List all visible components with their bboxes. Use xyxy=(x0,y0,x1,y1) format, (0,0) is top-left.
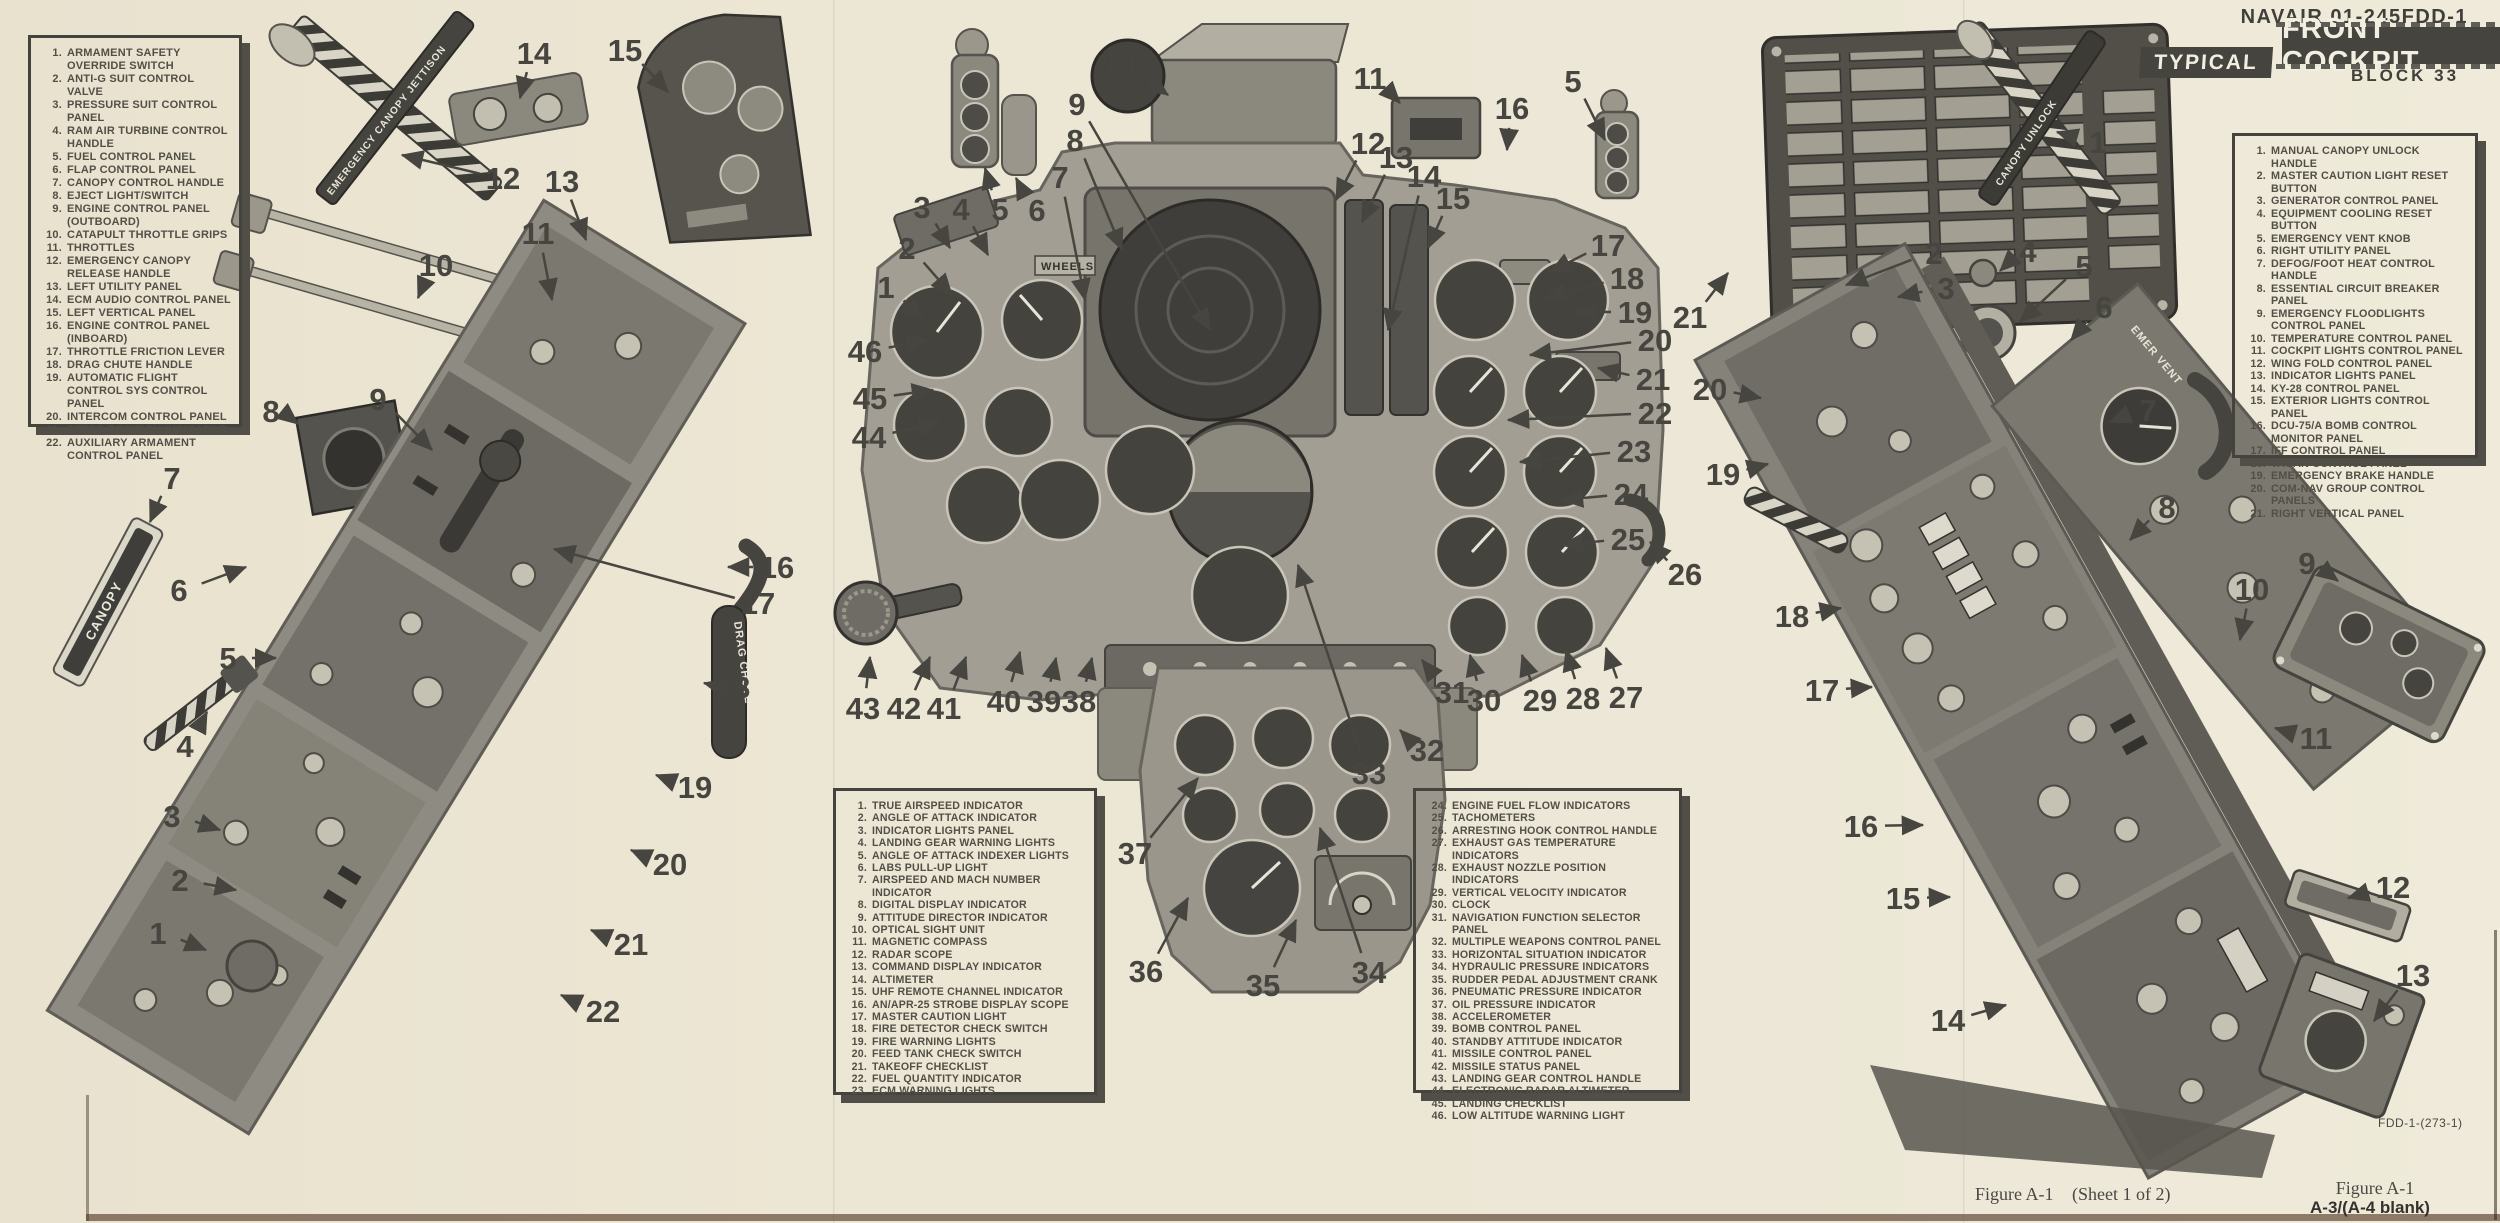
callout-center-10: 10 xyxy=(1102,46,1136,81)
callout-arrow-right-20 xyxy=(1734,392,1761,398)
callout-arrow-right-9 xyxy=(2328,573,2338,581)
callout-arrow-left-9 xyxy=(395,413,432,450)
callout-arrow-center-18 xyxy=(1545,283,1604,298)
plate-code: FDD-1-(273-1) xyxy=(2378,1116,2463,1130)
callout-arrow-center-29 xyxy=(1522,655,1531,681)
callout-center-38: 38 xyxy=(1062,684,1096,719)
callout-arrow-center-14 xyxy=(1388,195,1419,330)
legend-item: 19.FIRE WARNING LIGHTS xyxy=(848,1036,1088,1048)
callout-center-18: 18 xyxy=(1610,261,1644,296)
callout-center-30: 30 xyxy=(1467,683,1501,718)
legend-item: 4.RAM AIR TURBINE CONTROL HANDLE xyxy=(43,125,233,151)
callout-arrow-left-14 xyxy=(520,72,527,98)
callout-center-40: 40 xyxy=(987,684,1021,719)
callout-left-6: 6 xyxy=(170,573,187,608)
figure-caption: Figure A-1 (Sheet 1 of 2) xyxy=(1975,1184,2170,1205)
callout-arrow-center-21 xyxy=(1598,368,1629,375)
callout-arrow-center-9 xyxy=(1089,121,1210,330)
callout-arrow-center-45 xyxy=(894,390,933,395)
callout-left-9: 9 xyxy=(369,382,386,417)
callout-arrow-left-13 xyxy=(571,200,586,240)
legend-item: 17.MASTER CAUTION LIGHT xyxy=(848,1011,1088,1023)
callout-arrow-center-37 xyxy=(1150,778,1198,838)
callout-center-17: 17 xyxy=(1591,228,1625,263)
legend-item: 42.MISSILE STATUS PANEL xyxy=(1428,1061,1673,1073)
callout-left-17: 17 xyxy=(741,586,775,621)
callout-arrow-center-5 xyxy=(985,168,992,190)
callout-arrow-left-4 xyxy=(198,712,207,729)
legend-item: 11.THROTTLES xyxy=(43,242,233,255)
legend-item: 10.OPTICAL SIGHT UNIT xyxy=(848,924,1088,936)
callout-right-10: 10 xyxy=(2235,572,2269,607)
callout-arrow-center-42 xyxy=(915,657,930,690)
callout-arrow-left-15 xyxy=(642,64,668,92)
callout-arrow-center-38 xyxy=(1086,658,1092,682)
legend-item: 8.EJECT LIGHT/SWITCH xyxy=(43,190,233,203)
callout-arrow-left-8 xyxy=(293,420,298,424)
legend-item: 35.RUDDER PEDAL ADJUSTMENT CRANK xyxy=(1428,974,1673,986)
callout-arrow-center-3 xyxy=(936,224,950,248)
callout-center-32: 32 xyxy=(1410,733,1444,768)
legend-item: 4.EQUIPMENT COOLING RESET BUTTON xyxy=(2247,208,2469,233)
legend-item: 43.LANDING GEAR CONTROL HANDLE xyxy=(1428,1073,1673,1085)
legend-item: 3.PRESSURE SUIT CONTROL PANEL xyxy=(43,99,233,125)
callout-left-4: 4 xyxy=(176,729,194,764)
callout-center-2: 2 xyxy=(898,231,915,266)
callout-arrow-center-4 xyxy=(973,226,988,255)
legend-item: 37.OIL PRESSURE INDICATOR xyxy=(1428,999,1673,1011)
callout-arrow-right-10 xyxy=(2240,608,2247,640)
callout-arrow-right-11 xyxy=(2275,728,2293,733)
callout-arrow-right-12 xyxy=(2348,892,2370,898)
callout-left-5: 5 xyxy=(219,641,236,676)
callout-center-37: 37 xyxy=(1118,836,1152,871)
callout-right-11: 11 xyxy=(2300,721,2333,756)
callout-center-43: 43 xyxy=(846,691,880,726)
callout-arrow-center-32 xyxy=(1400,730,1408,738)
callout-center-20: 20 xyxy=(1638,323,1672,358)
callout-arrow-left-19 xyxy=(656,775,672,781)
callout-arrow-center-23 xyxy=(1520,453,1610,462)
callout-left-21: 21 xyxy=(614,927,648,962)
callout-center-26: 26 xyxy=(1668,557,1702,592)
legend-item: 38.ACCELEROMETER xyxy=(1428,1011,1673,1023)
legend-item: 36.PNEUMATIC PRESSURE INDICATOR xyxy=(1428,986,1673,998)
legend-item: 3.INDICATOR LIGHTS PANEL xyxy=(848,825,1088,837)
callout-arrow-center-20 xyxy=(1530,342,1631,355)
legend-item: 5.EMERGENCY VENT KNOB xyxy=(2247,233,2469,246)
legend-item: 23.ECM WARNING LIGHTS xyxy=(848,1085,1088,1097)
legend-item: 13.COMMAND DISPLAY INDICATOR xyxy=(848,961,1088,973)
callout-layer: 1415121311109876543211617181920212210987… xyxy=(0,0,2500,1223)
legend-right-console: 1.MANUAL CANOPY UNLOCK HANDLE2.MASTER CA… xyxy=(2232,133,2478,458)
legend-main-panel-a: 1.TRUE AIRSPEED INDICATOR2.ANGLE OF ATTA… xyxy=(833,788,1097,1095)
callout-arrow-left-18 xyxy=(704,683,709,684)
legend-item: 10.CATAPULT THROTTLE GRIPS xyxy=(43,229,233,242)
callout-center-31: 31 xyxy=(1435,675,1469,710)
callout-center-1: 1 xyxy=(877,270,894,305)
legend-item: 22.AUXILIARY ARMAMENT CONTROL PANEL xyxy=(43,437,233,463)
legend-item: 17.IFF CONTROL PANEL xyxy=(2247,445,2469,458)
legend-item: 16.ENGINE CONTROL PANEL (INBOARD) xyxy=(43,320,233,346)
callout-left-22: 22 xyxy=(586,994,620,1029)
callout-left-10: 10 xyxy=(419,248,453,283)
callout-arrow-right-17 xyxy=(1846,687,1872,689)
legend-item: 14.KY-28 CONTROL PANEL xyxy=(2247,383,2469,396)
callout-arrow-center-40 xyxy=(1011,652,1020,682)
callout-right-19: 19 xyxy=(1706,457,1740,492)
callout-right-21: 21 xyxy=(1673,300,1707,335)
legend-item: 15.EXTERIOR LIGHTS CONTROL PANEL xyxy=(2247,395,2469,420)
callout-right-1: 1 xyxy=(2089,125,2106,160)
callout-arrow-center-39 xyxy=(1050,658,1056,682)
callout-arrow-right-21 xyxy=(1706,273,1728,302)
callout-left-3: 3 xyxy=(163,799,180,834)
legend-item: 20.INTERCOM CONTROL PANEL xyxy=(43,411,233,424)
legend-item: 29.VERTICAL VELOCITY INDICATOR xyxy=(1428,887,1673,899)
callout-left-18: 18 xyxy=(716,670,750,705)
legend-item: 1.MANUAL CANOPY UNLOCK HANDLE xyxy=(2247,145,2469,170)
legend-item: 16.AN/APR-25 STROBE DISPLAY SCOPE xyxy=(848,999,1088,1011)
callout-center-5: 5 xyxy=(991,192,1008,227)
callout-arrow-center-35 xyxy=(1274,920,1296,967)
figure-caption-number: Figure A-1 xyxy=(1975,1184,2054,1204)
figure-caption-sheet: (Sheet 1 of 2) xyxy=(2072,1184,2170,1204)
legend-item: 16.DCU-75/A BOMB CONTROL MONITOR PANEL xyxy=(2247,420,2469,445)
callout-arrow-center-43 xyxy=(866,657,870,688)
callout-arrow-center-31 xyxy=(1422,660,1436,677)
legend-item: 18.TACAN CONTROL PANEL xyxy=(2247,458,2469,471)
callout-center-16: 16 xyxy=(1495,91,1529,126)
callout-arrow-right-19 xyxy=(1746,464,1768,470)
callout-arrow-left-17 xyxy=(554,549,735,598)
callout-arrow-left-7 xyxy=(150,496,161,522)
legend-item: 7.DEFOG/FOOT HEAT CONTROL HANDLE xyxy=(2247,258,2469,283)
callout-arrow-center-6 xyxy=(1016,178,1024,193)
callout-right-17: 17 xyxy=(1805,673,1839,708)
callout-left-1: 1 xyxy=(149,916,166,951)
legend-item: 19.EMERGENCY BRAKE HANDLE xyxy=(2247,470,2469,483)
legend-item: 4.LANDING GEAR WARNING LIGHTS xyxy=(848,837,1088,849)
callout-right-12: 12 xyxy=(2376,870,2410,905)
callout-arrow-center-5 xyxy=(1584,99,1605,140)
typical-label: TYPICAL xyxy=(2153,51,2259,75)
legend-item: 30.CLOCK xyxy=(1428,899,1673,911)
callout-right-2: 2 xyxy=(1925,236,1942,271)
callout-left-8: 8 xyxy=(262,394,279,429)
callout-arrow-center-16 xyxy=(1507,128,1509,150)
callout-left-12: 12 xyxy=(486,161,520,196)
callout-center-36: 36 xyxy=(1129,954,1163,989)
callout-arrow-left-1 xyxy=(181,940,206,950)
callout-right-15: 15 xyxy=(1886,881,1920,916)
legend-item: 15.UHF REMOTE CHANNEL INDICATOR xyxy=(848,986,1088,998)
callout-arrow-left-11 xyxy=(543,253,552,300)
callout-arrow-center-12 xyxy=(1336,160,1356,200)
callout-arrow-left-12 xyxy=(402,155,480,174)
callout-arrow-right-1 xyxy=(2057,132,2075,137)
callout-arrow-center-1 xyxy=(904,301,922,320)
legend-item: 2.ANGLE OF ATTACK INDICATOR xyxy=(848,812,1088,824)
callout-left-15: 15 xyxy=(608,33,642,68)
legend-item: 26.ARRESTING HOOK CONTROL HANDLE xyxy=(1428,825,1673,837)
legend-item: 1.TRUE AIRSPEED INDICATOR xyxy=(848,800,1088,812)
callout-center-9: 9 xyxy=(1068,87,1085,122)
legend-item: 28.EXHAUST NOZZLE POSITION INDICATORS xyxy=(1428,862,1673,887)
callout-center-41: 41 xyxy=(927,691,961,726)
callout-arrow-right-15 xyxy=(1927,897,1950,898)
legend-item: 14.ECM AUDIO CONTROL PANEL xyxy=(43,294,233,307)
legend-left-console: 1.ARMAMENT SAFETY OVERRIDE SWITCH2.ANTI-… xyxy=(28,35,242,427)
legend-item: 9.EMERGENCY FLOODLIGHTS CONTROL PANEL xyxy=(2247,308,2469,333)
callout-arrow-right-3 xyxy=(1898,292,1922,297)
callout-arrow-center-34 xyxy=(1320,828,1361,953)
callout-center-11: 11 xyxy=(1354,61,1387,96)
callout-arrow-center-2 xyxy=(924,262,952,295)
callout-arrow-center-41 xyxy=(954,657,966,690)
callout-arrow-center-15 xyxy=(1428,216,1442,248)
legend-item: 24.ENGINE FUEL FLOW INDICATORS xyxy=(1428,800,1673,812)
callout-arrow-left-21 xyxy=(591,930,608,937)
legend-item: 21.RIGHT VERTICAL PANEL xyxy=(2247,508,2469,521)
callout-center-27: 27 xyxy=(1609,680,1643,715)
callout-arrow-center-28 xyxy=(1566,650,1575,679)
callout-center-5: 5 xyxy=(1564,64,1581,99)
callout-arrow-right-5 xyxy=(2020,279,2066,322)
callout-center-4: 4 xyxy=(952,192,970,227)
callout-arrow-left-6 xyxy=(202,567,246,584)
typical-banner: TYPICAL xyxy=(2139,47,2273,78)
legend-item: 5.FUEL CONTROL PANEL xyxy=(43,151,233,164)
legend-item: 14.ALTIMETER xyxy=(848,974,1088,986)
legend-item: 12.WING FOLD CONTROL PANEL xyxy=(2247,358,2469,371)
legend-item: 31.NAVIGATION FUNCTION SELECTOR PANEL xyxy=(1428,912,1673,937)
callout-right-8: 8 xyxy=(2158,490,2175,525)
legend-item: 11.MAGNETIC COMPASS xyxy=(848,936,1088,948)
legend-item: 2.ANTI-G SUIT CONTROL VALVE xyxy=(43,73,233,99)
callout-arrow-right-8 xyxy=(2130,520,2149,540)
callout-arrow-left-2 xyxy=(204,884,236,890)
legend-item: 8.ESSENTIAL CIRCUIT BREAKER PANEL xyxy=(2247,283,2469,308)
callout-center-22: 22 xyxy=(1638,396,1672,431)
callout-right-5: 5 xyxy=(2075,249,2092,284)
callout-right-14: 14 xyxy=(1931,1003,1966,1038)
callout-arrow-right-13 xyxy=(2374,990,2397,1021)
callout-center-25: 25 xyxy=(1611,522,1645,557)
callout-arrow-right-6 xyxy=(2071,321,2087,340)
legend-item: 7.AIRSPEED AND MACH NUMBER INDICATOR xyxy=(848,874,1088,899)
callout-center-39: 39 xyxy=(1027,684,1061,719)
callout-left-20: 20 xyxy=(653,847,687,882)
callout-left-13: 13 xyxy=(545,164,579,199)
callout-arrow-center-33 xyxy=(1298,565,1361,754)
callout-arrow-left-22 xyxy=(561,995,581,1004)
legend-item: 6.RIGHT UTILITY PANEL xyxy=(2247,245,2469,258)
block-subtitle: BLOCK 33 xyxy=(2330,66,2480,86)
callout-left-19: 19 xyxy=(678,770,712,805)
callout-right-9: 9 xyxy=(2298,546,2315,581)
callout-arrow-left-10 xyxy=(418,283,425,298)
legend-main-panel-b: 24.ENGINE FUEL FLOW INDICATORS25.TACHOME… xyxy=(1413,788,1682,1093)
callout-center-46: 46 xyxy=(848,334,882,369)
legend-item: 20.COM-NAV GROUP CONTROL PANELS xyxy=(2247,483,2469,508)
callout-center-35: 35 xyxy=(1246,968,1280,1003)
callout-right-4: 4 xyxy=(2019,234,2037,269)
legend-item: 9.ATTITUDE DIRECTOR INDICATOR xyxy=(848,912,1088,924)
legend-item: 5.ANGLE OF ATTACK INDEXER LIGHTS xyxy=(848,850,1088,862)
legend-item: 44.ELECTRONIC RADAR ALTIMETER xyxy=(1428,1085,1673,1097)
callout-left-2: 2 xyxy=(171,863,188,898)
callout-right-7: 7 xyxy=(2139,393,2156,428)
callout-arrow-center-22 xyxy=(1508,414,1631,420)
callout-arrow-center-44 xyxy=(892,422,940,433)
legend-item: 1.ARMAMENT SAFETY OVERRIDE SWITCH xyxy=(43,47,233,73)
legend-item: 20.FEED TANK CHECK SWITCH xyxy=(848,1048,1088,1060)
callout-arrow-right-14 xyxy=(1971,1005,2006,1015)
legend-item: 17.THROTTLE FRICTION LEVER xyxy=(43,346,233,359)
page-number: A-3/(A-4 blank) xyxy=(2280,1198,2460,1218)
legend-item: 18.DRAG CHUTE HANDLE xyxy=(43,359,233,372)
callout-arrow-right-7 xyxy=(2110,416,2125,422)
legend-item: 22.FUEL QUANTITY INDICATOR xyxy=(848,1073,1088,1085)
callout-arrow-center-27 xyxy=(1606,648,1617,678)
callout-center-7: 7 xyxy=(1051,160,1068,195)
callout-arrow-center-7 xyxy=(1065,197,1085,300)
callout-arrow-center-46 xyxy=(889,340,928,348)
callout-center-44: 44 xyxy=(852,420,887,455)
callout-center-23: 23 xyxy=(1617,434,1651,469)
legend-item: 32.MULTIPLE WEAPONS CONTROL PANEL xyxy=(1428,936,1673,948)
callout-right-18: 18 xyxy=(1775,599,1809,634)
callout-arrow-center-10 xyxy=(1139,74,1168,95)
legend-item: 21.TAKEOFF CHECKLIST xyxy=(848,1061,1088,1073)
callout-center-42: 42 xyxy=(887,691,921,726)
legend-item: 12.RADAR SCOPE xyxy=(848,949,1088,961)
callout-arrow-center-13 xyxy=(1362,175,1385,222)
callout-center-8: 8 xyxy=(1066,123,1083,158)
legend-item: 41.MISSILE CONTROL PANEL xyxy=(1428,1048,1673,1060)
legend-item: 2.MASTER CAUTION LIGHT RESET BUTTON xyxy=(2247,170,2469,195)
callout-left-11: 11 xyxy=(522,216,555,251)
callout-right-20: 20 xyxy=(1693,372,1727,407)
legend-item: 7.CANOPY CONTROL HANDLE xyxy=(43,177,233,190)
legend-item: 11.COCKPIT LIGHTS CONTROL PANEL xyxy=(2247,345,2469,358)
legend-item: 27.EXHAUST GAS TEMPERATURE INDICATORS xyxy=(1428,837,1673,862)
title-banner: FRONT COCKPIT xyxy=(2282,27,2500,64)
callout-right-16: 16 xyxy=(1844,809,1878,844)
legend-item: 8.DIGITAL DISPLAY INDICATOR xyxy=(848,899,1088,911)
callout-left-7: 7 xyxy=(163,461,180,496)
legend-item: 12.EMERGENCY CANOPY RELEASE HANDLE xyxy=(43,255,233,281)
callout-center-3: 3 xyxy=(913,190,930,225)
callout-arrow-right-16 xyxy=(1885,825,1923,826)
callout-center-34: 34 xyxy=(1352,955,1387,990)
legend-item: 45.LANDING CHECKLIST xyxy=(1428,1098,1673,1110)
callout-arrow-right-4 xyxy=(2000,263,2008,271)
legend-item: 21.STEPS POSITION INDICATOR xyxy=(43,424,233,437)
callout-arrow-center-25 xyxy=(1562,541,1604,545)
callout-arrow-center-30 xyxy=(1470,655,1477,681)
legend-item: 10.TEMPERATURE CONTROL PANEL xyxy=(2247,333,2469,346)
legend-item: 25.TACHOMETERS xyxy=(1428,812,1673,824)
callout-right-6: 6 xyxy=(2095,290,2112,325)
callout-center-6: 6 xyxy=(1028,193,1045,228)
legend-item: 9.ENGINE CONTROL PANEL (OUTBOARD) xyxy=(43,203,233,229)
callout-right-13: 13 xyxy=(2396,958,2430,993)
callout-arrow-right-18 xyxy=(1816,608,1841,613)
legend-item: 46.LOW ALTITUDE WARNING LIGHT xyxy=(1428,1110,1673,1122)
callout-center-15: 15 xyxy=(1436,181,1470,216)
callout-arrow-center-11 xyxy=(1388,91,1400,103)
legend-item: 15.LEFT VERTICAL PANEL xyxy=(43,307,233,320)
manual-page: EMERGENCY CANOPY JETTISON xyxy=(0,0,2500,1223)
callout-arrow-center-26 xyxy=(1650,542,1667,561)
callout-right-3: 3 xyxy=(1937,271,1954,306)
callout-arrow-right-2 xyxy=(1846,260,1911,285)
callout-center-28: 28 xyxy=(1566,681,1600,716)
legend-item: 40.STANDBY ATTITUDE INDICATOR xyxy=(1428,1036,1673,1048)
callout-arrow-left-20 xyxy=(631,850,647,857)
callout-center-45: 45 xyxy=(853,381,887,416)
callout-arrow-center-36 xyxy=(1158,898,1188,954)
callout-center-24: 24 xyxy=(1614,477,1649,512)
callout-center-33: 33 xyxy=(1352,756,1386,791)
legend-item: 3.GENERATOR CONTROL PANEL xyxy=(2247,195,2469,208)
callout-arrow-left-3 xyxy=(195,822,220,830)
callout-center-29: 29 xyxy=(1523,683,1557,718)
callout-arrow-center-8 xyxy=(1084,158,1122,250)
legend-item: 18.FIRE DETECTOR CHECK SWITCH xyxy=(848,1023,1088,1035)
callout-arrow-center-24 xyxy=(1562,496,1607,500)
legend-item: 6.FLAP CONTROL PANEL xyxy=(43,164,233,177)
callout-center-21: 21 xyxy=(1636,362,1670,397)
legend-item: 34.HYDRAULIC PRESSURE INDICATORS xyxy=(1428,961,1673,973)
legend-item: 39.BOMB CONTROL PANEL xyxy=(1428,1023,1673,1035)
legend-item: 13.INDICATOR LIGHTS PANEL xyxy=(2247,370,2469,383)
callout-left-16: 16 xyxy=(760,550,794,585)
legend-item: 6.LABS PULL-UP LIGHT xyxy=(848,862,1088,874)
callout-arrow-center-17 xyxy=(1550,253,1586,272)
legend-item: 33.HORIZONTAL SITUATION INDICATOR xyxy=(1428,949,1673,961)
figure-reference: Figure A-1 xyxy=(2300,1178,2450,1199)
legend-item: 13.LEFT UTILITY PANEL xyxy=(43,281,233,294)
callout-left-14: 14 xyxy=(517,36,552,71)
legend-item: 19.AUTOMATIC FLIGHT CONTROL SYS CONTROL … xyxy=(43,372,233,411)
